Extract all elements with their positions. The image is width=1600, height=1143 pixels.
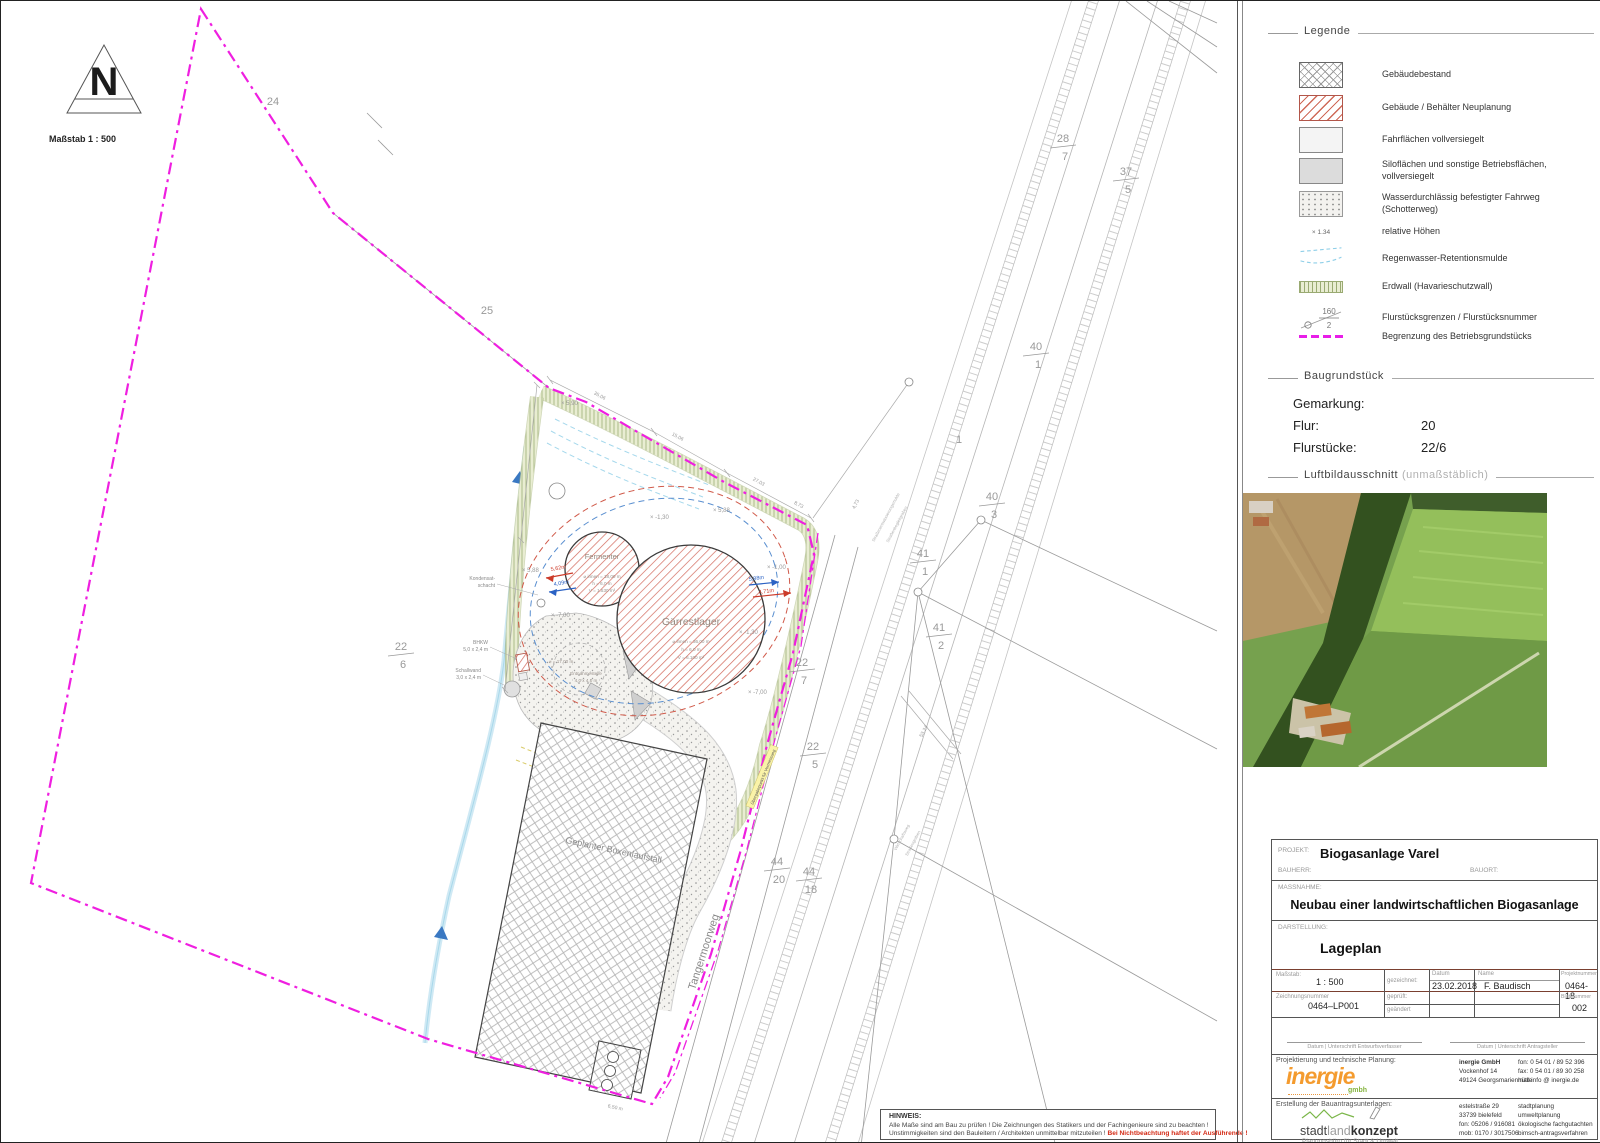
swatch-erdwall: [1299, 281, 1343, 293]
stadtland-address: estelstraße 29 33739 bielefeld fon: 0520…: [1459, 1103, 1519, 1139]
parcel-number: 25: [481, 305, 493, 317]
dimension-value: 27,03: [752, 477, 766, 488]
shaft-circle: [549, 483, 565, 499]
svg-text:5,0 x 2,4 m: 5,0 x 2,4 m: [463, 647, 488, 653]
parcel-number: 24: [267, 96, 279, 108]
name-label: Name: [1478, 971, 1494, 977]
legend-item-flurstueck: 160 2 Flurstücksgrenzen / Flurstücksnumm…: [1299, 303, 1537, 333]
parcel-number: 40 1: [1023, 341, 1049, 371]
swatch-fahrflaechen: [1299, 127, 1343, 153]
zeichnungsnummer-value: 0464–LP001: [1308, 1001, 1359, 1011]
signature-line-left: [1287, 1042, 1422, 1043]
legend-label: Begrenzung des Betriebsgrundstücks: [1382, 331, 1532, 343]
svg-text:5: 5: [812, 759, 818, 771]
svg-text:22: 22: [395, 641, 407, 653]
inergie-logo-sub: gmbh: [1348, 1087, 1367, 1094]
stadtlandkonzept-logo-icon: [1300, 1106, 1392, 1120]
firms-block: Datum | Unterschrift Entwurfsverfasser D…: [1271, 1016, 1598, 1140]
svg-text:160: 160: [1322, 307, 1336, 316]
hinweis-box: HINWEIS: Alle Maße sind am Bau zu prüfen…: [880, 1109, 1216, 1140]
site-plan-drawing: Geplanter Boxenlaufstall Fermenter ⌀ inn…: [1, 1, 1237, 1142]
bauherr-label: BAUHERR:: [1278, 867, 1312, 874]
darstellung-value: Lageplan: [1320, 940, 1381, 956]
parcel-number: 22 5: [800, 741, 826, 771]
svg-text:22: 22: [796, 657, 808, 669]
name-value: F. Baudisch: [1484, 981, 1531, 991]
darstellung-label: DARSTELLUNG:: [1278, 924, 1328, 931]
inergie-logo-tagline: [1288, 1094, 1348, 1095]
massnahme-value: Neubau einer landwirtschaftlichen Biogas…: [1272, 898, 1597, 912]
svg-text:41: 41: [917, 548, 929, 560]
swatch-flurstuecksgrenze: 160 2: [1299, 303, 1343, 333]
hinweis-line2: Unstimmigkeiten sind den Bauleitern / Ar…: [889, 1130, 1248, 1137]
logo-stadt: stadt: [1300, 1124, 1327, 1138]
parcel-lines: [333, 1, 1217, 1142]
svg-text:Entnahmestelle: Entnahmestelle: [570, 671, 602, 676]
elevation-mark: × -1,00: [767, 565, 787, 571]
flow-arrow-icon: [434, 926, 448, 940]
parcel-number: 22 6: [388, 641, 414, 671]
svg-text:V = 1.530 m³: V = 1.530 m³: [589, 588, 616, 593]
svg-text:5: 5: [1125, 184, 1131, 196]
swatch-relative-hoehen: × 1.34: [1299, 225, 1343, 239]
svg-text:37: 37: [1120, 166, 1132, 178]
hinweis-line1: Alle Maße sind am Bau zu prüfen ! Die Ze…: [889, 1122, 1209, 1129]
aerial-photo-image: [1243, 493, 1547, 767]
logo-konzept: konzept: [1351, 1124, 1398, 1138]
svg-text:22: 22: [807, 741, 819, 753]
baugrundstueck-title: Baugrundstück: [1304, 370, 1384, 382]
svg-text:28: 28: [1057, 133, 1069, 145]
dimension-value: 53,24: [919, 724, 930, 738]
flurstuecke-row: Flurstücke: 22/6: [1293, 440, 1357, 455]
svg-text:6: 6: [400, 659, 406, 671]
legend-item-erdwall: Erdwall (Havarieschutzwall): [1299, 281, 1493, 293]
svg-text:44: 44: [803, 866, 815, 878]
swatch-neuplanung: [1299, 95, 1343, 121]
svg-text:20: 20: [773, 874, 785, 886]
datum-label: Datum: [1432, 971, 1450, 977]
legend-item-siloflaechen: Siloflächen und sonstige Betriebsflächen…: [1299, 158, 1592, 184]
svg-text:7: 7: [801, 675, 807, 687]
svg-text:40: 40: [986, 491, 998, 503]
blattnummer-label: Blattnummer: [1561, 994, 1591, 1000]
legend-label: Regenwasser-Retentionsmulde: [1382, 253, 1508, 265]
signature-line-right: [1450, 1042, 1585, 1043]
inergie-contact: fon: 0 54 01 / 89 52 396 fax: 0 54 01 / …: [1518, 1059, 1585, 1086]
svg-text:41: 41: [933, 622, 945, 634]
swatch-schotterweg: [1299, 191, 1343, 217]
geaendert-label: geändert: [1387, 1007, 1411, 1013]
inergie-logo: inergie gmbh: [1286, 1063, 1396, 1097]
hinweis-title: HINWEIS:: [889, 1113, 921, 1120]
svg-text:5,62m: 5,62m: [550, 564, 567, 573]
svg-text:18: 18: [805, 884, 817, 896]
svg-text:7: 7: [1062, 151, 1068, 163]
swatch-siloflaechen: [1299, 158, 1343, 184]
barn-building: Geplanter Boxenlaufstall: [475, 723, 707, 1099]
elevation-mark: × -7,00: [551, 613, 571, 619]
dimension-value: 15,06: [671, 432, 685, 443]
luftbild-title: Luftbildausschnitt: [1304, 469, 1398, 481]
dimension-value: 35,06: [593, 391, 607, 402]
parcel-number: 44 20: [764, 856, 790, 886]
svg-text:h = 6,0 m: h = 6,0 m: [681, 647, 700, 652]
geprueft-label: geprüft:: [1387, 994, 1407, 1000]
svg-text:N: N: [90, 60, 119, 104]
swatch-retentionsmulde: [1299, 246, 1343, 272]
legend-item-begrenzung: Begrenzung des Betriebsgrundstücks: [1299, 331, 1532, 343]
aerial-photo: [1243, 493, 1547, 767]
manhole: [537, 599, 545, 607]
parcel-number: 1: [956, 434, 962, 446]
gezeichnet-label: gezeichnet:: [1387, 978, 1418, 984]
zeichnungsnummer-label: Zeichnungsnummer: [1276, 994, 1329, 1000]
massstab-label: Maßstab:: [1276, 972, 1301, 978]
svg-text:3,0 x 2,4 m: 3,0 x 2,4 m: [456, 675, 481, 681]
svg-text:⌀ innen = 36,00 m: ⌀ innen = 36,00 m: [672, 639, 709, 644]
svg-text:1: 1: [922, 566, 928, 578]
massstab-value: 1 : 500: [1316, 977, 1344, 987]
legend-label: relative Höhen: [1382, 226, 1440, 238]
svg-text:44: 44: [771, 856, 783, 868]
projekt-label: PROJEKT:: [1278, 847, 1309, 854]
svg-text:h = 6,0 m: h = 6,0 m: [592, 581, 611, 586]
elevation-mark: × -1,30: [650, 515, 670, 521]
site-plan-sheet: Geplanter Boxenlaufstall Fermenter ⌀ inn…: [0, 0, 1600, 1143]
stadtland-services: stadtplanung umweltplanung ökologische f…: [1518, 1103, 1593, 1139]
massnahme-label: MASSNAHME:: [1278, 884, 1322, 891]
datum-value: 23.02.2018: [1432, 981, 1477, 991]
svg-text:⌀ innen = 18,00 m: ⌀ innen = 18,00 m: [583, 574, 620, 579]
inergie-logo-text: inergie: [1286, 1063, 1354, 1089]
legend-label: Siloflächen und sonstige Betriebsflächen…: [1382, 159, 1592, 182]
silo-circle: [504, 681, 520, 697]
elevation-mark: × 5,88: [522, 568, 540, 574]
legend-item-bestand: Gebäudebestand: [1299, 62, 1451, 88]
legend-label: Gebäude / Behälter Neuplanung: [1382, 102, 1511, 114]
legend-item-hoehen: × 1.34 relative Höhen: [1299, 225, 1440, 239]
stadtlandkonzept-logo: stadtlandkonzept Planungsbüro für Stadt …: [1300, 1106, 1430, 1138]
flur-row: Flur: 20: [1293, 418, 1319, 433]
dimension-value: 4,73: [851, 499, 861, 511]
digestate-tank: Gärrestlager ⌀ innen = 36,00 m h = 6,0 m…: [617, 545, 765, 693]
svg-text:2: 2: [938, 640, 944, 652]
baugrundstueck-header: Baugrundstück: [1268, 370, 1594, 382]
elevation-mark: × -1,30: [739, 630, 759, 636]
logo-land: land: [1327, 1124, 1351, 1138]
panel-divider: [1237, 1, 1238, 1142]
legend-item-neuplanung: Gebäude / Behälter Neuplanung: [1299, 95, 1511, 121]
blattnummer-value: 002: [1572, 1003, 1587, 1013]
elevation-mark: × -7,00: [748, 690, 768, 696]
title-block: PROJEKT: Biogasanlage Varel BAUHERR: BAU…: [1271, 839, 1598, 1018]
svg-text:V = 6.100 m³: V = 6.100 m³: [678, 655, 705, 660]
digestate-label: Gärrestlager: [662, 616, 721, 628]
legend-item-fahrflaechen: Fahrflächen vollversiegelt: [1299, 127, 1484, 153]
svg-text:3: 3: [991, 509, 997, 521]
luftbild-subtitle: (unmaßstäblich): [1402, 469, 1488, 481]
bauort-label: BAUORT:: [1470, 867, 1498, 874]
svg-text:5,88m: 5,88m: [748, 575, 764, 583]
legend-title: Legende: [1304, 25, 1350, 37]
svg-text:BHKW: BHKW: [473, 640, 488, 646]
legend-label: Erdwall (Havarieschutzwall): [1382, 281, 1493, 293]
dimension-value: 8,73: [793, 500, 805, 510]
svg-text:4,09m: 4,09m: [553, 579, 570, 588]
gemarkung-row: Gemarkung:: [1293, 396, 1405, 411]
road-annotation: Straßenentwässerungsmulde: [871, 491, 901, 542]
svg-text:Kondensat-: Kondensat-: [469, 576, 495, 582]
parcel-number: 41 2: [926, 622, 952, 652]
swatch-gebaeudebestand: [1299, 62, 1343, 88]
signature-caption-right: Datum | Unterschrift Antragsteller: [1450, 1044, 1585, 1050]
elevation-mark: × 5,90: [561, 401, 579, 407]
svg-text:1: 1: [1035, 359, 1041, 371]
legend-item-retention: Regenwasser-Retentionsmulde: [1299, 246, 1508, 272]
projekt-value: Biogasanlage Varel: [1320, 846, 1439, 861]
scale-label: Maßstab 1 : 500: [49, 134, 159, 144]
hinweis-line2-warning: Bei Nichtbeachtung haftet der Ausführend…: [1107, 1130, 1247, 1137]
legend-item-schotterweg: Wasserdurchlässig befestigter Fahrweg(Sc…: [1299, 191, 1540, 217]
svg-text:2: 2: [1327, 321, 1332, 330]
legend-header: Legende: [1268, 25, 1594, 37]
svg-text:Schallwand: Schallwand: [455, 668, 481, 674]
north-arrow-icon: N: [49, 43, 159, 121]
svg-text:40: 40: [1030, 341, 1042, 353]
signature-caption-left: Datum | Unterschrift Entwurfsverfasser: [1287, 1044, 1422, 1050]
projektnummer-label: Projektnummer: [1561, 971, 1597, 977]
luftbild-header: Luftbildausschnitt (unmaßstäblich): [1268, 469, 1594, 481]
legend-label: Gebäudebestand: [1382, 69, 1451, 81]
north-arrow: N Maßstab 1 : 500: [49, 43, 159, 143]
svg-text:schacht: schacht: [478, 583, 496, 589]
legend-label: Flurstücksgrenzen / Flurstücksnummer: [1382, 312, 1537, 324]
hinweis-line2-text: Unstimmigkeiten sind den Bauleitern / Ar…: [889, 1130, 1106, 1137]
svg-text:4,0 x 4,0 m: 4,0 x 4,0 m: [575, 678, 598, 683]
fermenter-label: Fermenter: [585, 552, 620, 561]
legend-label: Fahrflächen vollversiegelt: [1382, 134, 1484, 146]
elevation-mark: × 5,88: [713, 508, 731, 514]
svg-text:⌀ = 17,00 m: ⌀ = 17,00 m: [549, 659, 574, 664]
dimension-value: 6,50 m: [607, 1103, 623, 1112]
legend-label: Wasserdurchlässig befestigter Fahrweg(Sc…: [1382, 192, 1540, 215]
swatch-betriebsgrundstueck: [1299, 335, 1343, 338]
